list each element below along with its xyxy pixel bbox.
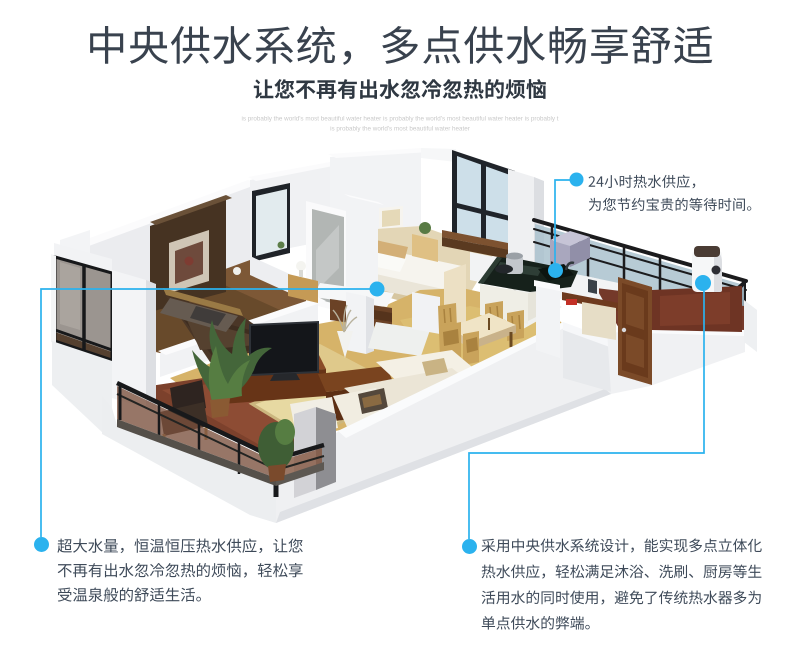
svg-text:is probably the world's most b: is probably the world's most beautiful w… [330, 126, 470, 133]
svg-text:is probably the world's most b: is probably the world's most beautiful w… [241, 116, 558, 123]
